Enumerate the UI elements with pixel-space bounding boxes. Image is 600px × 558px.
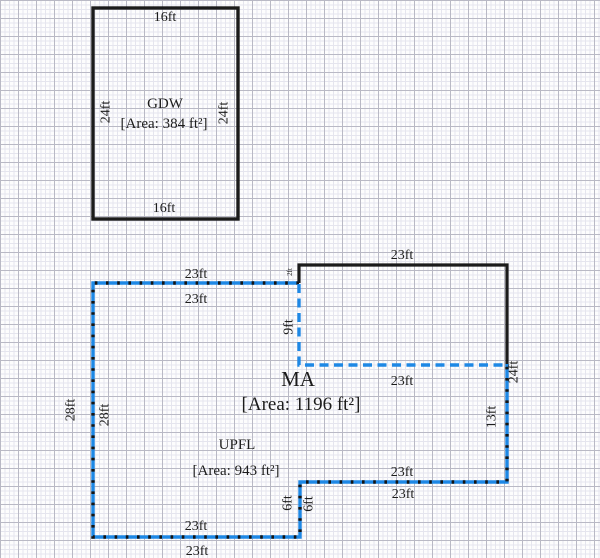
upfl-room-name: UPFL xyxy=(219,437,256,453)
bottom-inner-dim-label: 23ft xyxy=(185,519,208,534)
bottom-outer-dim-label: 23ft xyxy=(186,544,209,558)
gdw-bottom-dim-label: 16ft xyxy=(153,201,176,216)
gdw-right-dim-label: 24ft xyxy=(217,102,232,125)
graph-paper-canvas[interactable]: 16ft 16ft 24ft 24ft GDW [Area: 384 ft²] … xyxy=(0,0,600,558)
ma-bottom-dim-label: 23ft xyxy=(391,465,414,480)
upfl-mid-horizontal-dim-label: 23ft xyxy=(391,374,414,389)
step-inner-dim-label: 6ft xyxy=(302,496,317,512)
step-outer-dim-label: 6ft xyxy=(281,495,296,511)
floorplan-drawing: 16ft 16ft 24ft 24ft GDW [Area: 384 ft²] … xyxy=(0,0,600,558)
ma-right-dim-label: 24ft xyxy=(507,361,522,384)
upfl-room-area: [Area: 943 ft²] xyxy=(193,463,280,479)
shared-top-outer-dim-label: 23ft xyxy=(185,267,208,282)
ma-room-wall[interactable] xyxy=(299,265,507,366)
ma-notch-dim-label: 2ft xyxy=(286,268,294,276)
left-outer-dim-label: 28ft xyxy=(64,399,79,422)
shared-top-inner-dim-label: 23ft xyxy=(185,292,208,307)
gdw-room-area: [Area: 384 ft²] xyxy=(121,116,208,132)
gdw-top-dim-label: 16ft xyxy=(154,10,177,25)
upfl-interior-edge[interactable] xyxy=(299,284,507,365)
upfl-right-dim-label: 13ft xyxy=(485,406,500,429)
upfl-bottom-right-dim-label: 23ft xyxy=(392,487,415,502)
left-inner-dim-label: 28ft xyxy=(98,404,113,427)
gdw-room-name: GDW xyxy=(147,96,184,112)
ma-top-dim-label: 23ft xyxy=(391,248,414,263)
ma-room-name: MA xyxy=(281,367,316,391)
gdw-left-dim-label: 24ft xyxy=(99,101,114,124)
ma-room-area: [Area: 1196 ft²] xyxy=(242,394,361,415)
upfl-mid-vertical-dim-label: 9ft xyxy=(282,319,297,335)
